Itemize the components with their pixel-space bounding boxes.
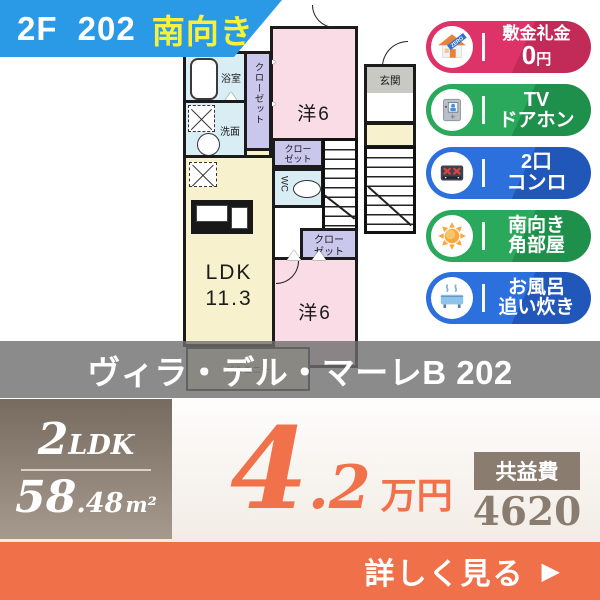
interior-stairs — [322, 138, 358, 232]
kitchen-counter — [191, 200, 253, 234]
facing-direction: 南向き — [152, 5, 254, 53]
opening-marker — [287, 250, 301, 260]
spec-box: 2 LDK 58 .48 m² — [0, 399, 172, 539]
bathtub-shape — [190, 58, 218, 100]
room-western-1-label: 洋6 — [273, 99, 355, 126]
rent-unit: 万円 — [381, 467, 453, 519]
closet-1: クローゼット — [244, 51, 272, 151]
badge-line2: 0円 — [522, 43, 551, 69]
zero-house-icon: ZERO — [436, 31, 468, 63]
badge-line1: 2口 — [521, 152, 552, 173]
closet-3-label: クロー ゼット — [303, 235, 355, 258]
property-title-bar: ヴィラ・デル・マーレB 202 — [0, 341, 600, 398]
badge-line1: 敷金礼金 — [503, 25, 571, 43]
door-arc — [312, 5, 335, 28]
layout-spec: 2 LDK — [38, 418, 135, 462]
badge-line2: コンロ — [507, 173, 567, 194]
listing-card: 洋6 浴室 クローゼット 洗面 — [0, 0, 600, 600]
washer-space — [188, 105, 215, 132]
badge-tv-doorphone: ✳ TV ドアホン — [426, 84, 591, 136]
area-spec: 58 .48 m² — [15, 476, 157, 520]
room-ldk: LDK 11.3 — [183, 155, 275, 347]
bathroom-label: 浴室 — [221, 70, 241, 85]
sun-icon — [436, 220, 468, 252]
entrance-hall — [364, 122, 416, 148]
room-entrance: 玄関 — [364, 64, 416, 124]
wc-label: WC — [278, 176, 288, 192]
badge-line2: 追い炊き — [498, 298, 574, 318]
tv-doorphone-icon: ✳ — [436, 94, 468, 126]
stove-icon — [436, 157, 468, 189]
entrance-label: 玄関 — [380, 73, 401, 88]
badge-line1: TV — [524, 90, 550, 111]
closet-3: クロー ゼット — [300, 228, 358, 260]
closet-2-label: クロー ゼット — [275, 144, 321, 165]
closet-1-label: クローゼット — [252, 62, 262, 125]
badge-two-burner-stove: 2口 コンロ — [426, 147, 591, 199]
common-fee-label: 共益費 — [474, 452, 580, 490]
badge-south-corner: 南向き 角部屋 — [426, 210, 591, 262]
bathtub-icon — [436, 282, 468, 314]
room-washroom: 洗面 — [183, 100, 247, 158]
details-button-label: 詳しく見る — [365, 549, 525, 593]
spec-divider — [21, 469, 151, 471]
washroom-label: 洗面 — [220, 123, 240, 138]
badge-deposit-zero: ZERO 敷金礼金 0円 — [426, 21, 591, 73]
opening-marker — [312, 250, 326, 260]
badge-line2: 角部屋 — [508, 236, 565, 256]
rent-decimal: .2 — [308, 453, 371, 523]
washbasin — [197, 133, 220, 156]
toilet-shape — [293, 180, 321, 198]
exterior-stairs — [364, 146, 416, 234]
room-wc: WC — [272, 168, 324, 208]
rent-price: 4 .2 万円 — [230, 414, 470, 536]
ldk-label: LDK 11.3 — [186, 260, 272, 313]
room-western-2-label: 洋6 — [275, 298, 355, 325]
floor-unit-number: 2F 202 — [17, 10, 136, 48]
closet-2: クロー ゼット — [272, 138, 324, 168]
badge-line1: お風呂 — [508, 278, 565, 298]
badge-bath-reheat: お風呂 追い炊き — [426, 272, 591, 324]
property-title: ヴィラ・デル・マーレB 202 — [87, 346, 513, 394]
details-button[interactable]: 詳しく見る ▶ — [0, 542, 600, 600]
fridge-space — [189, 162, 217, 187]
arrow-right-icon: ▶ — [542, 557, 560, 586]
svg-text:✳: ✳ — [450, 114, 455, 121]
badge-line2: ドアホン — [498, 111, 574, 131]
rent-integer: 4 — [230, 414, 308, 526]
badge-line1: 南向き — [508, 216, 565, 236]
